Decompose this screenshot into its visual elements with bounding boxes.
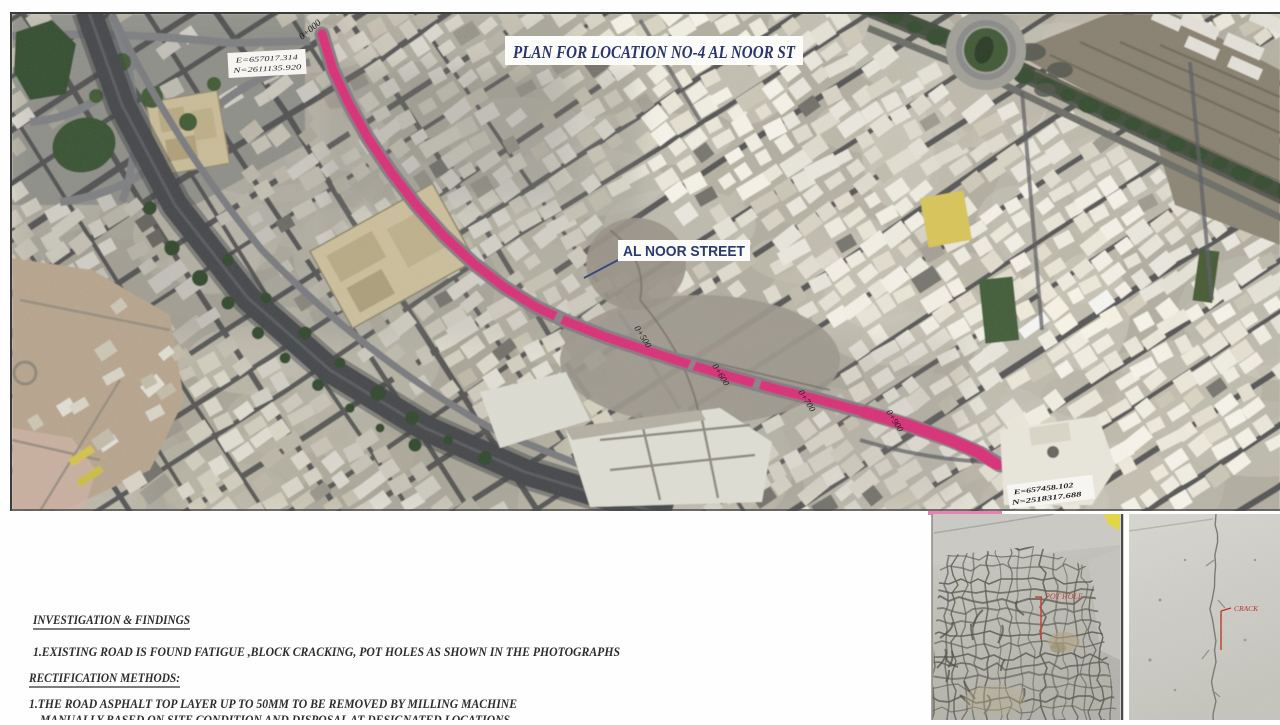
svg-text:1.EXISTING ROAD IS FOUND FATIG: 1.EXISTING ROAD IS FOUND FATIGUE ,BLOCK …: [33, 644, 620, 659]
svg-text:INVESTIGATION & FINDINGS: INVESTIGATION & FINDINGS: [32, 612, 190, 627]
svg-text:AL NOOR STREET: AL NOOR STREET: [623, 243, 745, 260]
svg-text:MANUALLY BASED ON SITE CONDITI: MANUALLY BASED ON SITE CONDITION AND DIS…: [39, 712, 510, 720]
svg-text:CRACK: CRACK: [1234, 604, 1259, 613]
svg-text:PLAN FOR LOCATION NO-4 AL NOOR: PLAN FOR LOCATION NO-4 AL NOOR ST: [512, 42, 796, 62]
svg-text:RECTIFICATION METHODS:: RECTIFICATION METHODS:: [28, 670, 180, 685]
svg-text:1.THE ROAD ASPHALT TOP LAYER U: 1.THE ROAD ASPHALT TOP LAYER UP TO 50MM …: [29, 696, 517, 711]
